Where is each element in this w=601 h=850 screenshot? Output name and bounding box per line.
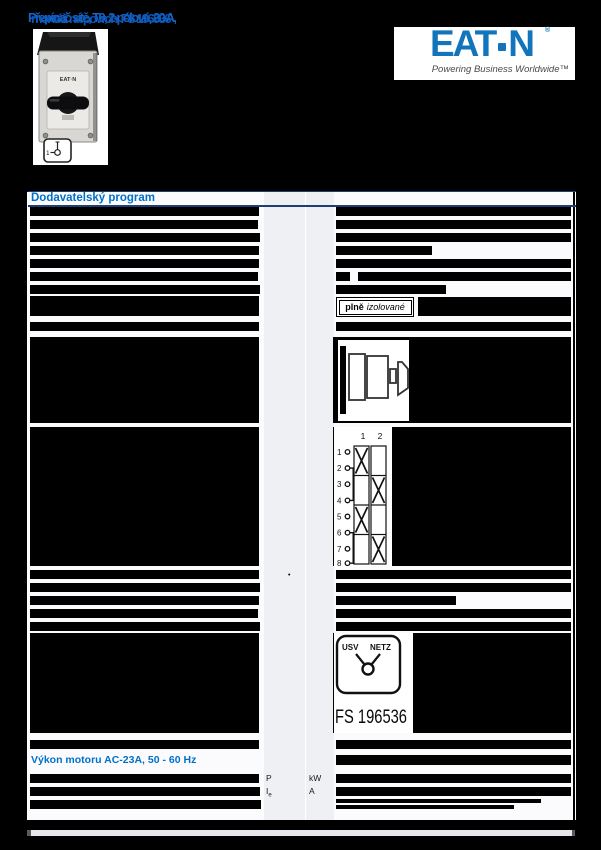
redacted-text-bar	[30, 800, 261, 809]
redacted-text-bar	[30, 259, 259, 268]
fully-insulated-badge: plně izolované	[336, 297, 414, 317]
redacted-text-bar	[336, 755, 571, 765]
footer-cap-left	[27, 830, 31, 836]
redacted-text-block	[30, 633, 259, 733]
screw-icon	[43, 133, 48, 138]
terminal-label: 2	[337, 464, 342, 473]
changeover-dial-diagram: USV NETZ FS 196536	[334, 633, 413, 733]
datasheet-page: Přepínač sítě, T0, 2-pólové, 20 A, montá…	[0, 0, 601, 850]
redacted-text-bar	[336, 259, 571, 268]
mounting-plate	[340, 346, 346, 414]
dial-label-netz: NETZ	[370, 643, 391, 652]
redacted-text-bar	[336, 596, 456, 605]
faceplate-brand-text: EAT·N	[60, 77, 76, 83]
terminal-label: 5	[337, 513, 342, 522]
wordmark-left: EAT	[430, 23, 495, 64]
contact-sequence-diagram: 1 2	[334, 427, 392, 566]
page-title-garbled: Přepínač sítě, T0, 2-pólové, 20 A, montá…	[28, 10, 176, 27]
faceplate-label	[62, 115, 74, 120]
handle-ridge	[50, 99, 60, 102]
redacted-text-bar	[336, 207, 571, 216]
terminal-labels: 1 2 3 4 5 6 7 8	[337, 448, 342, 566]
redacted-text-bar	[358, 272, 571, 281]
terminal-label: 1	[337, 448, 342, 457]
handle-profile	[398, 362, 408, 395]
x-mark	[356, 507, 368, 533]
screw-icon	[88, 59, 93, 64]
special-version-code: FS 196536	[335, 707, 407, 728]
symbol-p: P	[266, 773, 272, 784]
redacted-text-bar	[336, 799, 541, 803]
redacted-text-bar	[336, 570, 571, 579]
unit-a: A	[309, 786, 315, 797]
redacted-text-bar	[336, 740, 571, 749]
registered-mark: ®	[545, 27, 550, 34]
eaton-wordmark: EATN	[430, 23, 533, 65]
redacted-text-bar	[336, 787, 571, 796]
column-divider	[305, 192, 306, 820]
section-title-motor-power: Výkon motoru AC-23A, 50 - 60 Hz	[31, 754, 196, 767]
redacted-text-bar	[30, 596, 259, 605]
redacted-text-block	[30, 427, 259, 566]
badge-text-bold: plně	[345, 302, 364, 312]
enclosure-shadow	[93, 53, 97, 141]
terminal-label: 6	[337, 529, 342, 538]
redacted-text-bar	[30, 774, 259, 783]
redacted-text-bar	[336, 233, 571, 242]
symbol-ie: Ie	[266, 786, 272, 797]
terminal-label: 7	[337, 545, 342, 554]
terminal-label: 3	[337, 480, 342, 489]
changeover-diagram-box: USV NETZ FS 196536	[334, 633, 413, 733]
redacted-text-bar	[336, 805, 514, 809]
redacted-text-bar	[30, 272, 258, 281]
contact-diagram-box: 1 2	[334, 427, 392, 566]
screw-icon	[43, 59, 48, 64]
redacted-text-bar	[30, 583, 260, 592]
title-layer-b: montáž na povrch, FS 196536	[31, 11, 170, 26]
x-mark	[373, 478, 385, 504]
redacted-text-block	[418, 297, 571, 316]
rotary-handle	[47, 97, 89, 110]
shaft-profile	[390, 369, 396, 383]
top-cap-highlight	[47, 32, 91, 37]
x-mark	[373, 537, 385, 563]
redacted-text-bar	[336, 622, 571, 631]
redacted-text-bar	[30, 570, 259, 579]
redacted-text-bar	[336, 246, 432, 255]
contact-col-header-1: 1	[361, 431, 366, 441]
badge-text-italic: izolované	[367, 302, 405, 312]
rotary-switch-photo: EAT·N 1	[33, 29, 108, 165]
terminal-label: 8	[337, 559, 342, 566]
product-photo: EAT·N 1	[33, 29, 108, 165]
redacted-text-bar	[30, 322, 259, 331]
terminal-circles	[345, 450, 350, 566]
fully-insulated-badge-inner: plně izolované	[339, 300, 412, 315]
dial-knob-circle	[363, 664, 374, 675]
redacted-text-bar	[30, 246, 259, 255]
terminal-label: 4	[337, 496, 342, 505]
position-knob-circle	[55, 150, 61, 156]
dial-label-usv: USV	[342, 643, 359, 652]
redacted-text-block	[30, 337, 259, 423]
eaton-dot-icon	[498, 43, 506, 51]
redacted-text-bar	[30, 233, 260, 242]
footer-cap-right	[572, 830, 576, 836]
x-mark	[356, 448, 368, 474]
section-title-supply-program: Dodavatelský program	[31, 192, 155, 205]
redacted-text-block	[30, 296, 259, 316]
redacted-text-bar	[30, 220, 258, 229]
redacted-text-bar	[336, 774, 571, 783]
redacted-text-bar	[336, 583, 571, 592]
eaton-tagline: Powering Business Worldwide™	[432, 64, 569, 75]
eaton-logo: EATN ® Powering Business Worldwide™	[394, 27, 575, 80]
symbol-ie-sub: e	[268, 793, 271, 799]
right-border-white	[575, 192, 576, 820]
supply-program-table: Dodavatelský program plně izolované	[27, 192, 575, 820]
redacted-text-bar	[30, 622, 260, 631]
mounting-drawing-box	[338, 340, 409, 421]
redacted-text-bar	[336, 285, 446, 294]
contact-col-header-2: 2	[378, 431, 383, 441]
page-footer-stripe	[27, 830, 575, 836]
middle-column-band	[264, 192, 334, 820]
switch-side-view-drawing	[338, 340, 409, 421]
redacted-text-bar	[30, 609, 258, 618]
screw-icon	[88, 133, 93, 138]
redacted-text-bar	[30, 285, 260, 294]
redacted-text-bar	[336, 220, 571, 229]
column-divider	[262, 192, 263, 820]
wordmark-right: N	[508, 23, 533, 64]
switch-body-profile	[367, 356, 388, 398]
redacted-text-bar	[336, 609, 571, 618]
redacted-text-bar	[30, 740, 259, 749]
footnote-marker: •	[288, 573, 290, 578]
redacted-text-bar	[336, 272, 350, 281]
redacted-text-bar	[30, 207, 259, 216]
redacted-text-bar	[30, 787, 260, 796]
enclosure-profile	[349, 354, 365, 400]
redacted-text-bar	[336, 322, 571, 331]
unit-kw: kW	[309, 773, 321, 784]
position-label: 1	[46, 150, 50, 157]
